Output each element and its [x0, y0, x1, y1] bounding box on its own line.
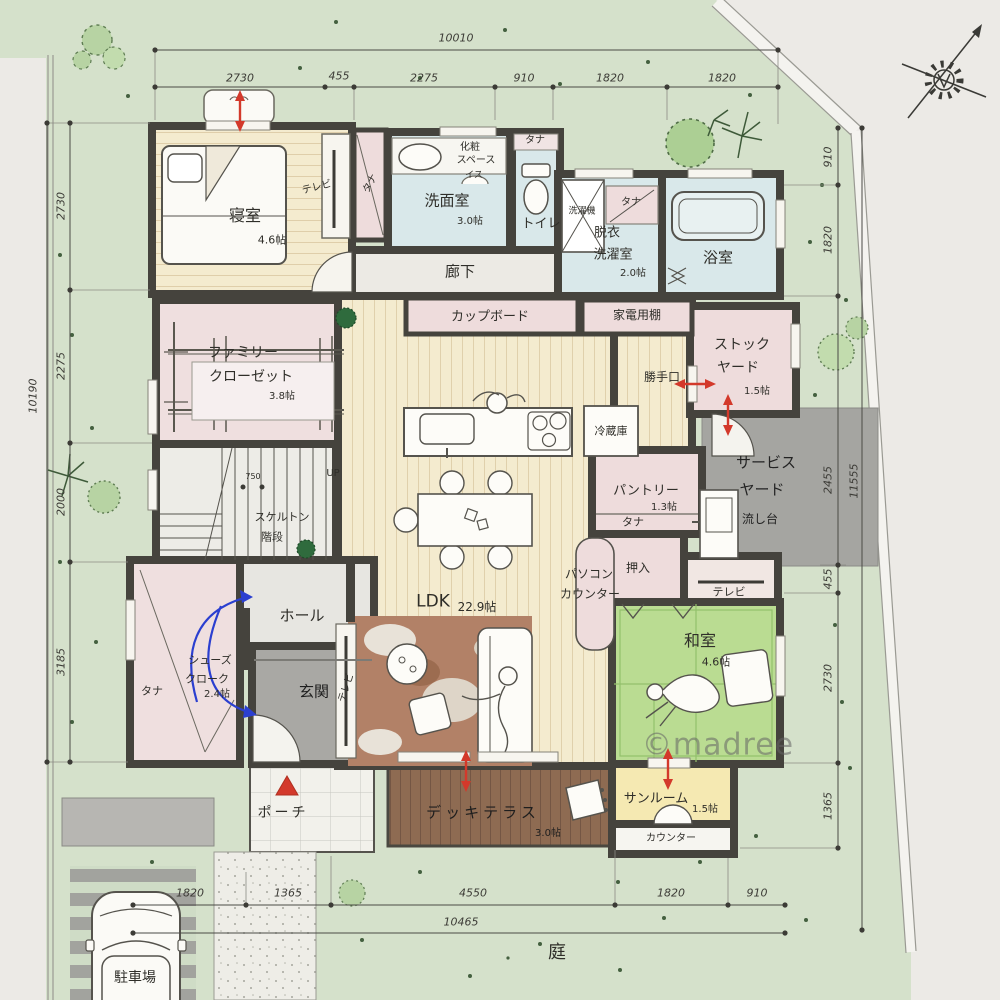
family-closet-line1: ファミリー — [208, 346, 278, 360]
person-cooking — [487, 393, 507, 413]
corridor-name: 廊下 — [445, 265, 475, 280]
approach-path — [214, 852, 316, 1000]
dim-bottom-1: 1820 — [176, 888, 204, 899]
tana-label-toilet: タナ — [525, 136, 545, 146]
person-sofa — [499, 667, 517, 685]
stove — [528, 412, 570, 450]
family-closet-size: 3.8帖 — [269, 392, 295, 402]
tv-label-washitsu: テレビ — [713, 587, 746, 598]
dim-bottom-2: 1365 — [274, 888, 302, 899]
laundry-name-line1: 脱衣 — [594, 227, 620, 240]
oshiire-name: 押入 — [626, 562, 650, 574]
stairs-name-line2: 階段 — [261, 532, 283, 543]
indoor-plant — [297, 540, 315, 558]
dim-top-4: 910 — [514, 73, 535, 84]
kitchen-sink — [420, 414, 474, 444]
watermark: ©madree — [642, 728, 794, 763]
dim-right-overall: 11555 — [849, 464, 860, 499]
counter-name: カウンター — [646, 834, 696, 844]
toilet-bowl — [524, 180, 548, 214]
ldk-size: 22.9帖 — [458, 601, 497, 613]
sink-stand-name: 流し台 — [742, 513, 778, 525]
sofa — [478, 628, 532, 762]
dim-right-5: 2730 — [823, 664, 834, 692]
deck-size: 3.0帖 — [535, 829, 561, 839]
sunroom-size: 1.5帖 — [692, 805, 718, 815]
washer-label: 洗濯機 — [568, 208, 595, 217]
pantry-size: 1.3帖 — [651, 503, 677, 513]
deck-name: デッキテラス — [426, 806, 540, 821]
bedroom-size: 4.6帖 — [258, 235, 287, 246]
tana-label-laundry: タナ — [621, 198, 641, 208]
dim-top-1: 2730 — [226, 73, 254, 84]
bbq-grill — [566, 780, 605, 820]
dim-top-5: 1820 — [596, 73, 624, 84]
genkan-name: 玄関 — [299, 685, 329, 700]
pantry-name: パントリー — [613, 485, 679, 498]
makeup-space-line2: スペース — [457, 156, 496, 166]
pc-counter-line1: パソコン — [565, 568, 613, 580]
driveway-strip — [62, 798, 214, 846]
dim-bottom-overall: 10465 — [444, 917, 479, 928]
parking-name: 駐車場 — [114, 971, 156, 985]
dim-right-1: 910 — [823, 147, 834, 168]
living-area — [336, 616, 532, 766]
dim-top-2: 455 — [329, 71, 350, 82]
pc-counter-line2: カウンター — [560, 588, 620, 600]
dim-right-4: 455 — [823, 569, 834, 590]
toilet-tank — [522, 164, 550, 177]
hall-name: ホール — [279, 609, 324, 624]
stock-yard-line2: ヤード — [717, 361, 759, 375]
pillow — [168, 154, 202, 182]
appliance-shelf-name: 家電用棚 — [613, 309, 661, 321]
toilet-name: トイレ — [521, 218, 560, 231]
stairs-name-line1: スケルトン — [255, 512, 310, 523]
floorplan-drawing — [0, 0, 1000, 1000]
dim-left-2: 2275 — [56, 352, 67, 380]
dim-top-6: 1820 — [708, 73, 736, 84]
shoes-closet-line2: クローク — [185, 674, 229, 685]
dim-top-overall: 10010 — [439, 33, 474, 44]
dim-left-3: 2000 — [56, 488, 67, 516]
bedroom-name: 寝室 — [229, 208, 261, 224]
family-closet-line2: クローゼット — [209, 370, 293, 384]
fridge-name: 冷蔵庫 — [595, 426, 628, 437]
dim-right-6: 1365 — [823, 792, 834, 820]
laundry-size: 2.0帖 — [620, 269, 646, 279]
indoor-plant-2 — [336, 308, 356, 328]
round-table — [387, 644, 427, 684]
washroom-size: 3.0帖 — [457, 217, 483, 227]
sunroom-name: サンルーム — [624, 793, 689, 806]
garden-label: 庭 — [548, 944, 566, 962]
stock-yard-line1: ストック — [714, 338, 770, 352]
stairs-width-label: 750 — [245, 473, 260, 481]
tana-label-shoes: タナ — [141, 686, 163, 697]
washitsu-size: 4.6帖 — [702, 657, 731, 668]
stool-label: イス — [465, 172, 483, 181]
person-lying — [647, 684, 663, 700]
laundry-name-line2: 洗濯室 — [593, 249, 632, 262]
dim-bottom-4: 1820 — [657, 888, 685, 899]
kitchen-door-name: 勝手口 — [644, 371, 680, 383]
service-yard-line2: ヤード — [739, 483, 784, 498]
dim-bottom-5: 910 — [747, 888, 768, 899]
dim-right-2: 1820 — [823, 226, 834, 254]
porch-name: ポーチ — [258, 806, 309, 820]
cupboard-name: カップボード — [451, 311, 529, 324]
service-yard-line1: サービス — [736, 456, 796, 471]
shoes-closet-size: 2.4帖 — [204, 690, 230, 700]
washbasin — [399, 144, 441, 170]
floor-cushion — [408, 692, 452, 736]
dim-left-1: 2730 — [56, 192, 67, 220]
washitsu-name: 和室 — [684, 633, 716, 649]
tana-label-pantry: タナ — [622, 517, 644, 528]
dim-left-4: 3185 — [56, 648, 67, 676]
makeup-space-line1: 化粧 — [460, 143, 480, 153]
shoes-closet-line1: シューズ — [188, 655, 231, 666]
stock-yard-size: 1.5帖 — [744, 387, 770, 397]
bath-name: 浴室 — [703, 251, 733, 266]
dim-bottom-3: 4550 — [459, 888, 487, 899]
dim-top-3: 2275 — [410, 73, 438, 84]
stairs-up-label: UP — [326, 469, 339, 479]
washroom-name: 洗面室 — [424, 194, 469, 209]
dim-right-3: 2455 — [823, 466, 834, 494]
ldk-name: LDK — [416, 594, 450, 611]
dim-left-overall: 10190 — [28, 379, 39, 414]
floorplan-canvas: 寝室 4.6帖 テレビ タナ 化粧 スペース イス 洗面室 3.0帖 タナ トイ… — [0, 0, 1000, 1000]
